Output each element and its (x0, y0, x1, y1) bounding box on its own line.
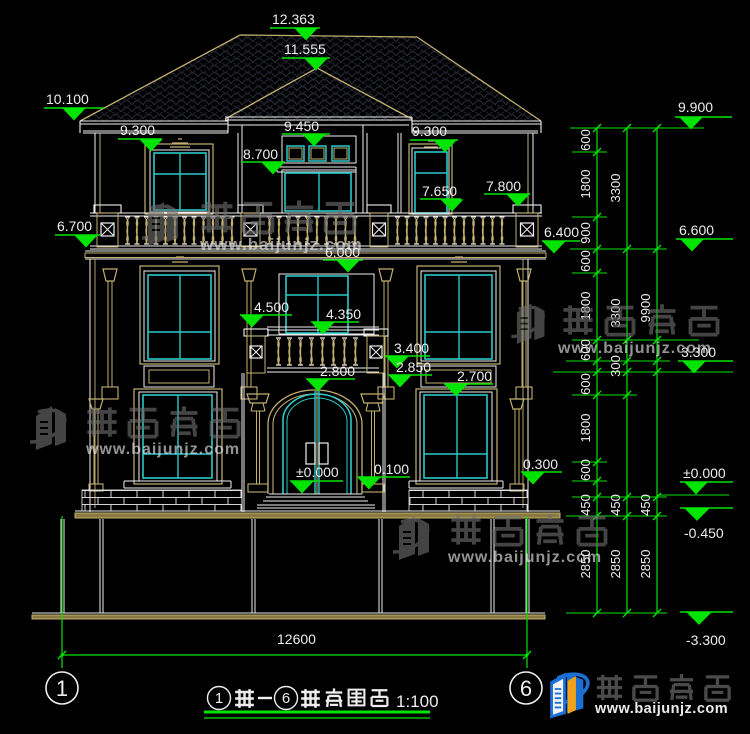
svg-text:-3.300: -3.300 (686, 632, 726, 648)
svg-text:6.600: 6.600 (679, 222, 714, 238)
svg-text:450: 450 (578, 494, 593, 516)
svg-text:4.350: 4.350 (326, 306, 361, 322)
svg-text:±0.000: ±0.000 (296, 464, 339, 480)
svg-text:7.650: 7.650 (422, 183, 457, 199)
svg-text:9.450: 9.450 (284, 118, 319, 134)
svg-text:9.300: 9.300 (120, 122, 155, 138)
svg-text:2.850: 2.850 (396, 359, 431, 375)
svg-text:www.baijunjz.com: www.baijunjz.com (85, 441, 240, 458)
svg-text:900: 900 (578, 222, 593, 244)
svg-text:9.900: 9.900 (678, 99, 713, 115)
svg-text:4.500: 4.500 (254, 299, 289, 315)
svg-text:±0.000: ±0.000 (683, 465, 726, 481)
svg-text:1: 1 (56, 676, 68, 701)
svg-text:2.700: 2.700 (457, 368, 492, 384)
svg-text:6.400: 6.400 (544, 224, 579, 240)
svg-text:7.800: 7.800 (486, 178, 521, 194)
svg-text:6: 6 (282, 690, 290, 707)
svg-text:600: 600 (578, 129, 593, 151)
svg-text:450: 450 (638, 494, 653, 516)
svg-text:10.100: 10.100 (46, 91, 89, 107)
svg-text:8.700: 8.700 (243, 146, 278, 162)
svg-text:1800: 1800 (578, 170, 593, 199)
svg-text:9.300: 9.300 (412, 123, 447, 139)
svg-text:www.baijunjz.com: www.baijunjz.com (594, 701, 728, 717)
svg-text:1:100: 1:100 (396, 692, 439, 711)
svg-text:2850: 2850 (638, 550, 653, 579)
svg-text:6: 6 (520, 676, 532, 701)
svg-text:12600: 12600 (277, 631, 316, 647)
svg-text:-0.450: -0.450 (684, 525, 724, 541)
svg-text:3300: 3300 (608, 174, 623, 203)
svg-text:12.363: 12.363 (272, 11, 315, 27)
svg-text:www.baijunjz.com: www.baijunjz.com (557, 340, 712, 357)
svg-text:1800: 1800 (578, 414, 593, 443)
svg-text:9900: 9900 (638, 294, 653, 323)
svg-text:6.700: 6.700 (57, 218, 92, 234)
svg-text:11.555: 11.555 (284, 41, 326, 57)
svg-text:0.300: 0.300 (523, 456, 558, 472)
svg-text:600: 600 (578, 373, 593, 395)
svg-text:300: 300 (608, 355, 623, 377)
svg-text:3.400: 3.400 (394, 340, 429, 356)
svg-text:www.baijunjz.com: www.baijunjz.com (199, 235, 363, 254)
svg-text:2850: 2850 (608, 550, 623, 579)
svg-text:2.800: 2.800 (320, 363, 355, 379)
svg-text:450: 450 (608, 494, 623, 516)
svg-text:www.baijunjz.com: www.baijunjz.com (447, 549, 602, 566)
svg-text:0.100: 0.100 (374, 461, 409, 477)
svg-text:1: 1 (215, 690, 223, 707)
svg-text:600: 600 (578, 250, 593, 272)
svg-text:600: 600 (578, 459, 593, 481)
